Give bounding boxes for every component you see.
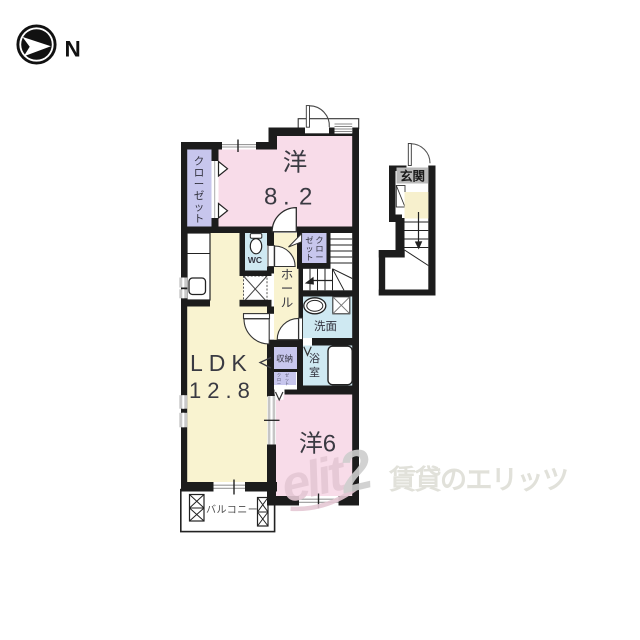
svg-text:ト: ト xyxy=(305,253,313,262)
svg-text:8: 8 xyxy=(264,184,277,211)
svg-text:収納: 収納 xyxy=(276,354,293,364)
svg-text:洋: 洋 xyxy=(283,149,308,177)
svg-text:室: 室 xyxy=(309,365,320,379)
svg-text:ル: ル xyxy=(281,296,294,310)
svg-text:ト: ト xyxy=(285,381,289,386)
svg-text:クローゼット: クローゼット xyxy=(194,156,205,226)
svg-text:ゼ: ゼ xyxy=(305,235,313,245)
svg-text:ホ: ホ xyxy=(281,268,294,282)
svg-text:2: 2 xyxy=(299,184,312,211)
svg-text:ー: ー xyxy=(315,253,323,262)
svg-text:12.8: 12.8 xyxy=(189,378,256,403)
svg-text:.: . xyxy=(283,184,290,211)
svg-text:ー: ー xyxy=(281,282,294,296)
svg-text:洗面: 洗面 xyxy=(314,320,337,333)
svg-text:バルコニー: バルコニー xyxy=(206,504,258,516)
svg-text:浴: 浴 xyxy=(309,352,320,365)
svg-text:WC: WC xyxy=(248,255,262,265)
svg-text:賃貸のエリッツ: 賃貸のエリッツ xyxy=(388,464,568,495)
svg-text:ー: ー xyxy=(277,381,281,386)
svg-text:玄関: 玄関 xyxy=(400,169,425,184)
svg-text:N: N xyxy=(65,37,81,62)
svg-text:LDK: LDK xyxy=(190,350,253,376)
